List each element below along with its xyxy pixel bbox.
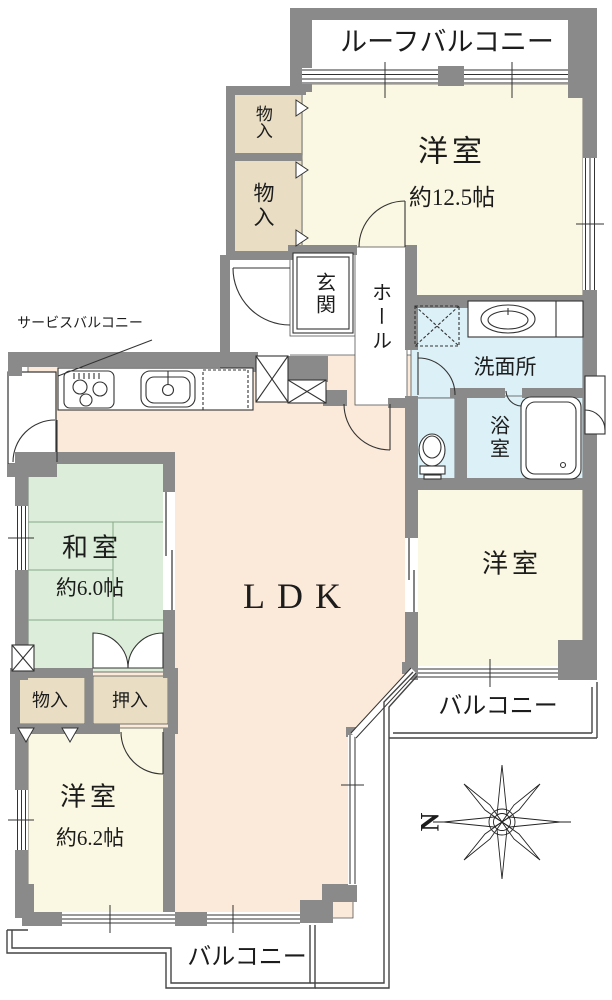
- stove-icon: [64, 371, 114, 408]
- label-bathroom: 浴室: [487, 415, 508, 461]
- label-closet-oshiire: 押入: [112, 692, 148, 711]
- label-closet-monoire: 物入: [32, 692, 68, 711]
- bathtub-icon: [521, 397, 581, 479]
- label-washroom: 洗面所: [474, 356, 537, 378]
- label-ldk: LDK: [243, 578, 353, 616]
- label-balcony-right: バルコニー: [438, 694, 558, 719]
- kitchen-sink-icon: [141, 371, 195, 407]
- label-western-room-125: 洋室: [418, 136, 486, 168]
- label-balcony-bottom: バルコニー: [187, 945, 307, 970]
- label-western-room-62-size: 約6.2帖: [56, 827, 124, 849]
- floor-plan: ルーフバルコニー 洋室 約12.5帖 物入 物入 玄関 ホール 洗面所 浴室 サ…: [0, 0, 612, 1000]
- label-hall: ホール: [369, 282, 390, 354]
- label-japanese-room: 和室: [62, 534, 122, 561]
- label-storage-upper-small: 物入: [253, 105, 271, 139]
- service-balcony-floor: [8, 372, 56, 464]
- compass-icon: [433, 765, 571, 879]
- toilet-icon: [419, 434, 445, 479]
- label-roof-balcony: ルーフバルコニー: [340, 28, 554, 56]
- label-service-balcony: サービスバルコニー: [17, 318, 143, 333]
- label-storage-upper-large: 物入: [252, 182, 274, 230]
- western-room-62-floor: [28, 728, 168, 916]
- label-western-room-125-size: 約12.5帖: [409, 186, 495, 210]
- floor-plan-drawing: [0, 0, 612, 1000]
- label-western-room-62: 洋室: [60, 783, 120, 810]
- lavatory-sink-icon: [468, 301, 583, 337]
- meter-box: [585, 376, 605, 434]
- sliding-door-japanese-room: [163, 492, 175, 610]
- porch-floor: [228, 260, 290, 362]
- sliding-door-room-right: [405, 538, 418, 612]
- label-entrance: 玄関: [313, 272, 334, 316]
- label-japanese-room-size: 約6.0帖: [56, 577, 124, 599]
- label-compass-north: N: [416, 813, 443, 832]
- label-western-room-right: 洋室: [482, 550, 542, 577]
